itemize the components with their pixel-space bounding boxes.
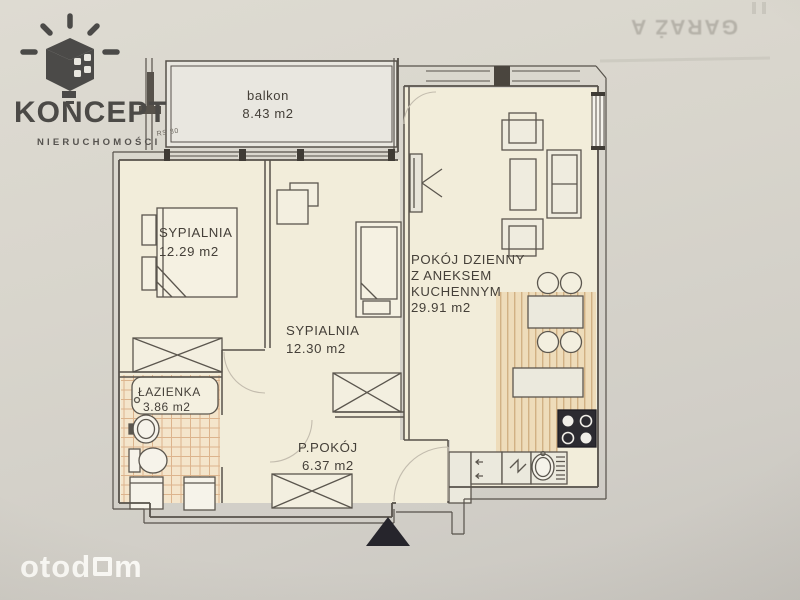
kitchen-counter-bottom [449,452,567,504]
bleed-through-text: GARAŻ A [626,14,738,38]
cube-house-icon [0,0,130,110]
window-pillar [494,66,510,86]
bleed-through-tick [752,2,756,14]
living-label-line2: Z ANEKSEM [411,268,492,283]
dishwasher [502,452,531,484]
hall-area: 6.37 m2 [302,458,354,473]
toilet-bowl [139,448,167,473]
bedroom1-wardrobe [133,338,222,372]
entrance-arrow [366,517,410,546]
balcony-area: 8.43 m2 [242,106,293,121]
dining-chair [538,273,559,294]
watermark-part-b: m [114,549,143,584]
bathroom-area: 3.86 m2 [143,400,191,414]
kitchen-counter-side [513,368,583,397]
bedroom2-bed [356,222,401,317]
living-label-line3: KUCHENNYM [411,284,501,299]
bedroom2-wardrobe [333,373,401,412]
hall-label: P.POKÓJ [298,440,358,455]
fridge [471,452,502,484]
bathroom-label: ŁAZIENKA [138,385,201,399]
right-wall-window [591,92,605,150]
stove [558,410,596,447]
bedroom1-label: SYPIALNIA [159,225,233,240]
dining-chair [561,273,582,294]
watermark-square-o [93,557,112,576]
agency-logo: KONCEPT NIERUCHOMOŚCI [0,0,220,170]
logo-subtitle: NIERUCHOMOŚCI [37,137,160,148]
hall-wardrobe [272,474,352,508]
dining-chair [538,332,559,353]
dining-table [528,296,583,328]
living-area: 29.91 m2 [411,300,471,315]
bathroom-cabinet [184,477,215,510]
tall-cabinet [449,452,471,503]
living-label-line1: POKÓJ DZIENNY [411,252,525,267]
bedroom2-label: SYPIALNIA [286,323,360,338]
otodom-watermark: otodm [20,549,143,585]
logo-title: KONCEPT [14,96,168,130]
coffee-table [510,159,536,210]
photographed-floor-plan-page: balkon 8.43 m2 RS 80 SYPIALNIA 12.29 m2 … [0,0,800,600]
dining-chair [561,332,582,353]
bedroom2-area: 12.30 m2 [286,341,346,356]
washing-machine [130,477,163,509]
balcony-label: balkon [247,88,289,103]
watermark-part-a: otod [20,549,91,584]
sofa [547,150,581,218]
bleed-through-tick [762,2,766,14]
bedroom1-area: 12.29 m2 [159,244,219,259]
